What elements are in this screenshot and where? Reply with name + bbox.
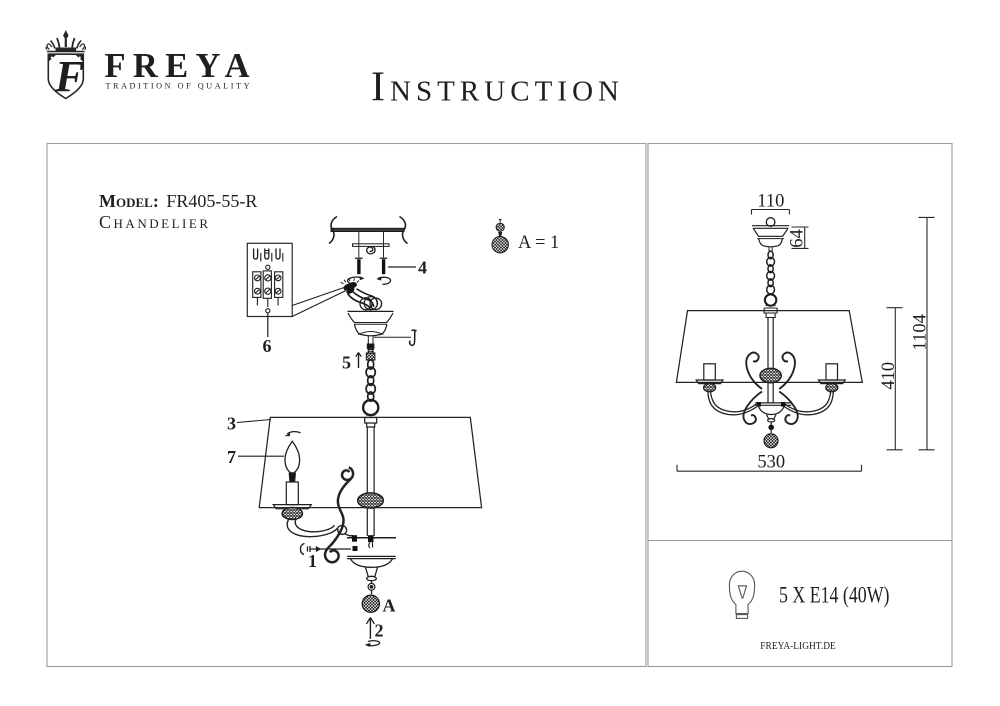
svg-text:5: 5 xyxy=(342,353,351,373)
svg-text:5 X E14 (40W): 5 X E14 (40W) xyxy=(779,583,890,608)
svg-text:F: F xyxy=(54,52,84,101)
svg-text:410: 410 xyxy=(879,362,899,390)
svg-text:3: 3 xyxy=(227,414,236,434)
svg-text:Instruction: Instruction xyxy=(371,65,619,111)
svg-text:64: 64 xyxy=(788,229,808,248)
svg-text:1104: 1104 xyxy=(911,314,931,350)
svg-text:FREYA: FREYA xyxy=(105,47,250,85)
svg-text:Chandelier: Chandelier xyxy=(99,212,208,232)
svg-text:7: 7 xyxy=(227,447,236,467)
svg-text:1: 1 xyxy=(308,551,317,571)
svg-text:110: 110 xyxy=(757,192,784,212)
svg-text:4: 4 xyxy=(418,258,427,278)
svg-text:FREYA-LIGHT.DE: FREYA-LIGHT.DE xyxy=(760,641,836,652)
svg-text:2: 2 xyxy=(375,621,384,641)
svg-text:A: A xyxy=(383,596,396,616)
svg-text:Model: FR405-55-R: Model: FR405-55-R xyxy=(99,191,257,211)
svg-text:530: 530 xyxy=(757,453,785,473)
svg-text:A = 1: A = 1 xyxy=(518,233,559,253)
svg-text:6: 6 xyxy=(263,336,272,356)
svg-text:TRADITION OF QUALITY: TRADITION OF QUALITY xyxy=(106,82,250,91)
